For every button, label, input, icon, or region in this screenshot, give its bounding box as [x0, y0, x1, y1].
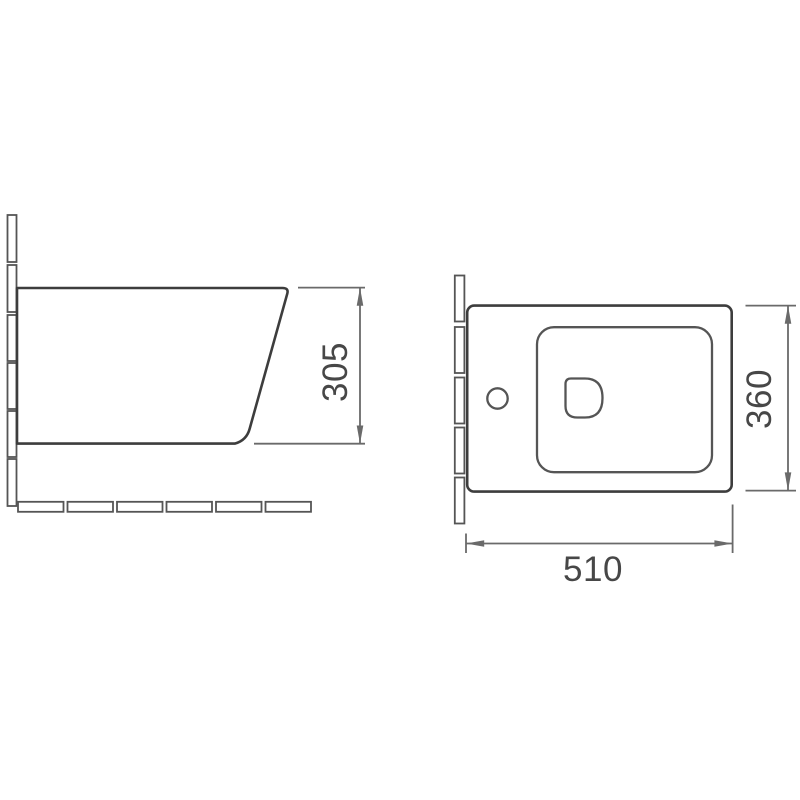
dimension-width-510 [466, 505, 733, 554]
bidet-side-profile [17, 288, 288, 444]
arrow-down-icon [785, 472, 792, 490]
wall-hatch-side [8, 215, 17, 506]
floor-hatch [18, 502, 311, 512]
arrow-up-icon [785, 306, 792, 324]
arrow-right-icon [714, 540, 732, 547]
dim-label-depth: 360 [740, 369, 780, 429]
arrow-up-icon [357, 288, 364, 306]
dim-label-width: 510 [563, 550, 623, 590]
side-elevation-view [8, 215, 366, 512]
wall-hatch-plan [455, 276, 465, 524]
arrow-down-icon [357, 426, 364, 444]
technical-drawing: 305 360 510 [0, 0, 800, 800]
arrow-left-icon [466, 540, 484, 547]
drawing-linework [0, 0, 800, 800]
dim-label-height: 305 [316, 342, 356, 402]
